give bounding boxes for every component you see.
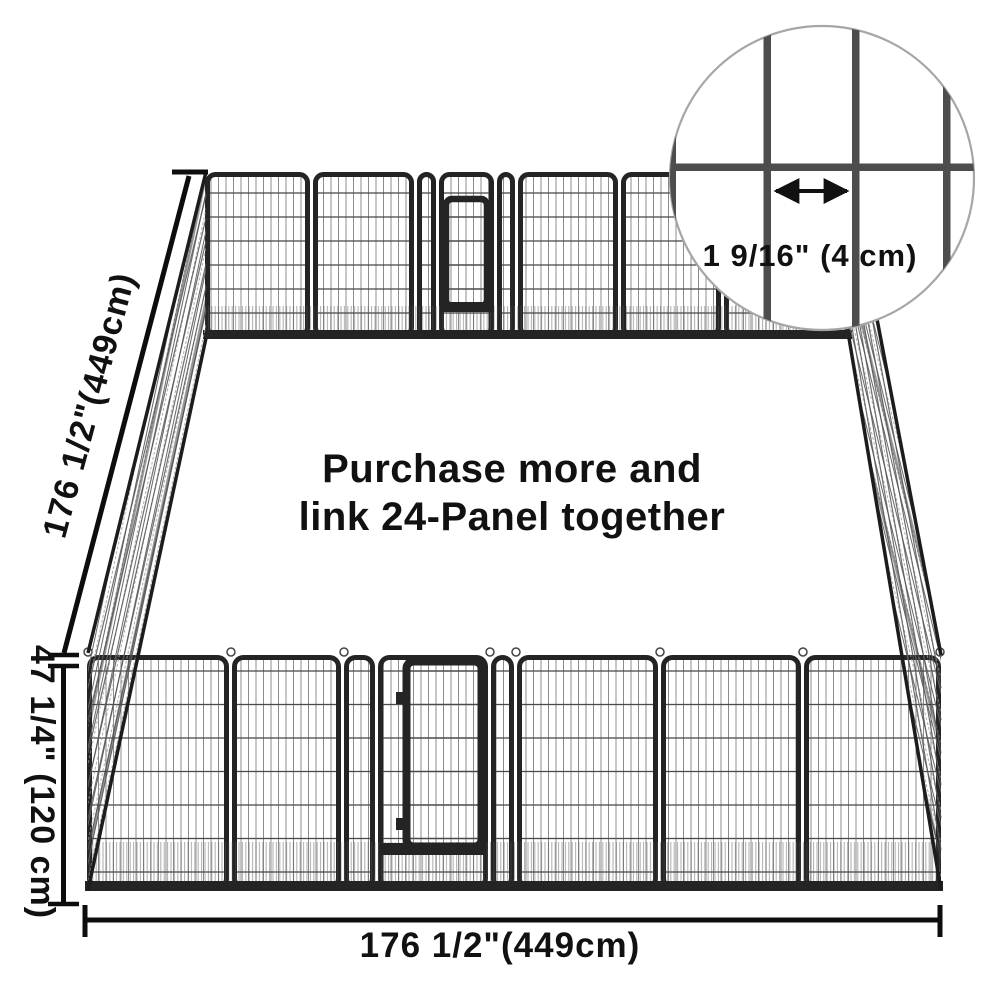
gate-door-frame xyxy=(407,662,482,847)
pen-bottom-rail xyxy=(85,881,943,891)
panel-link-loop xyxy=(656,648,664,656)
mesh-wire-vertical xyxy=(943,20,951,340)
pen-bottom-rail xyxy=(203,330,852,339)
width-dimension-label: 176 1/2"(449cm) xyxy=(360,926,641,965)
mesh-wire-vertical xyxy=(764,20,772,340)
mesh-spacing-label: 1 9/16" (4 cm) xyxy=(703,238,918,273)
playpen-illustration: 176 1/2"(449cm) 47 1/4" (120 cm) 176 1/2… xyxy=(0,0,1000,1000)
panel-link-loop xyxy=(340,648,348,656)
mesh-shading xyxy=(87,842,941,884)
panel-link-loop xyxy=(486,648,494,656)
promo-line2: link 24-Panel together xyxy=(299,495,726,539)
pen-front-wall xyxy=(84,648,944,891)
gate-door-sill xyxy=(380,843,486,855)
panel-link-loop xyxy=(799,648,807,656)
gate-hinge xyxy=(396,692,406,704)
promo-text: Purchase more and link 24-Panel together xyxy=(299,447,726,539)
mesh-wire-vertical xyxy=(852,20,860,340)
product-diagram: 176 1/2"(449cm) 47 1/4" (120 cm) 176 1/2… xyxy=(0,0,1000,1000)
promo-line1: Purchase more and xyxy=(322,447,702,491)
mesh-wire-horizontal xyxy=(662,164,988,172)
panel-link-loop xyxy=(512,648,520,656)
gate-door-frame xyxy=(446,199,487,306)
panel-link-loop xyxy=(227,648,235,656)
inset-circle xyxy=(670,26,974,330)
gate-hinge xyxy=(396,818,406,830)
gate-door-sill xyxy=(440,302,494,312)
height-dimension-label: 47 1/4" (120 cm) xyxy=(23,645,61,919)
